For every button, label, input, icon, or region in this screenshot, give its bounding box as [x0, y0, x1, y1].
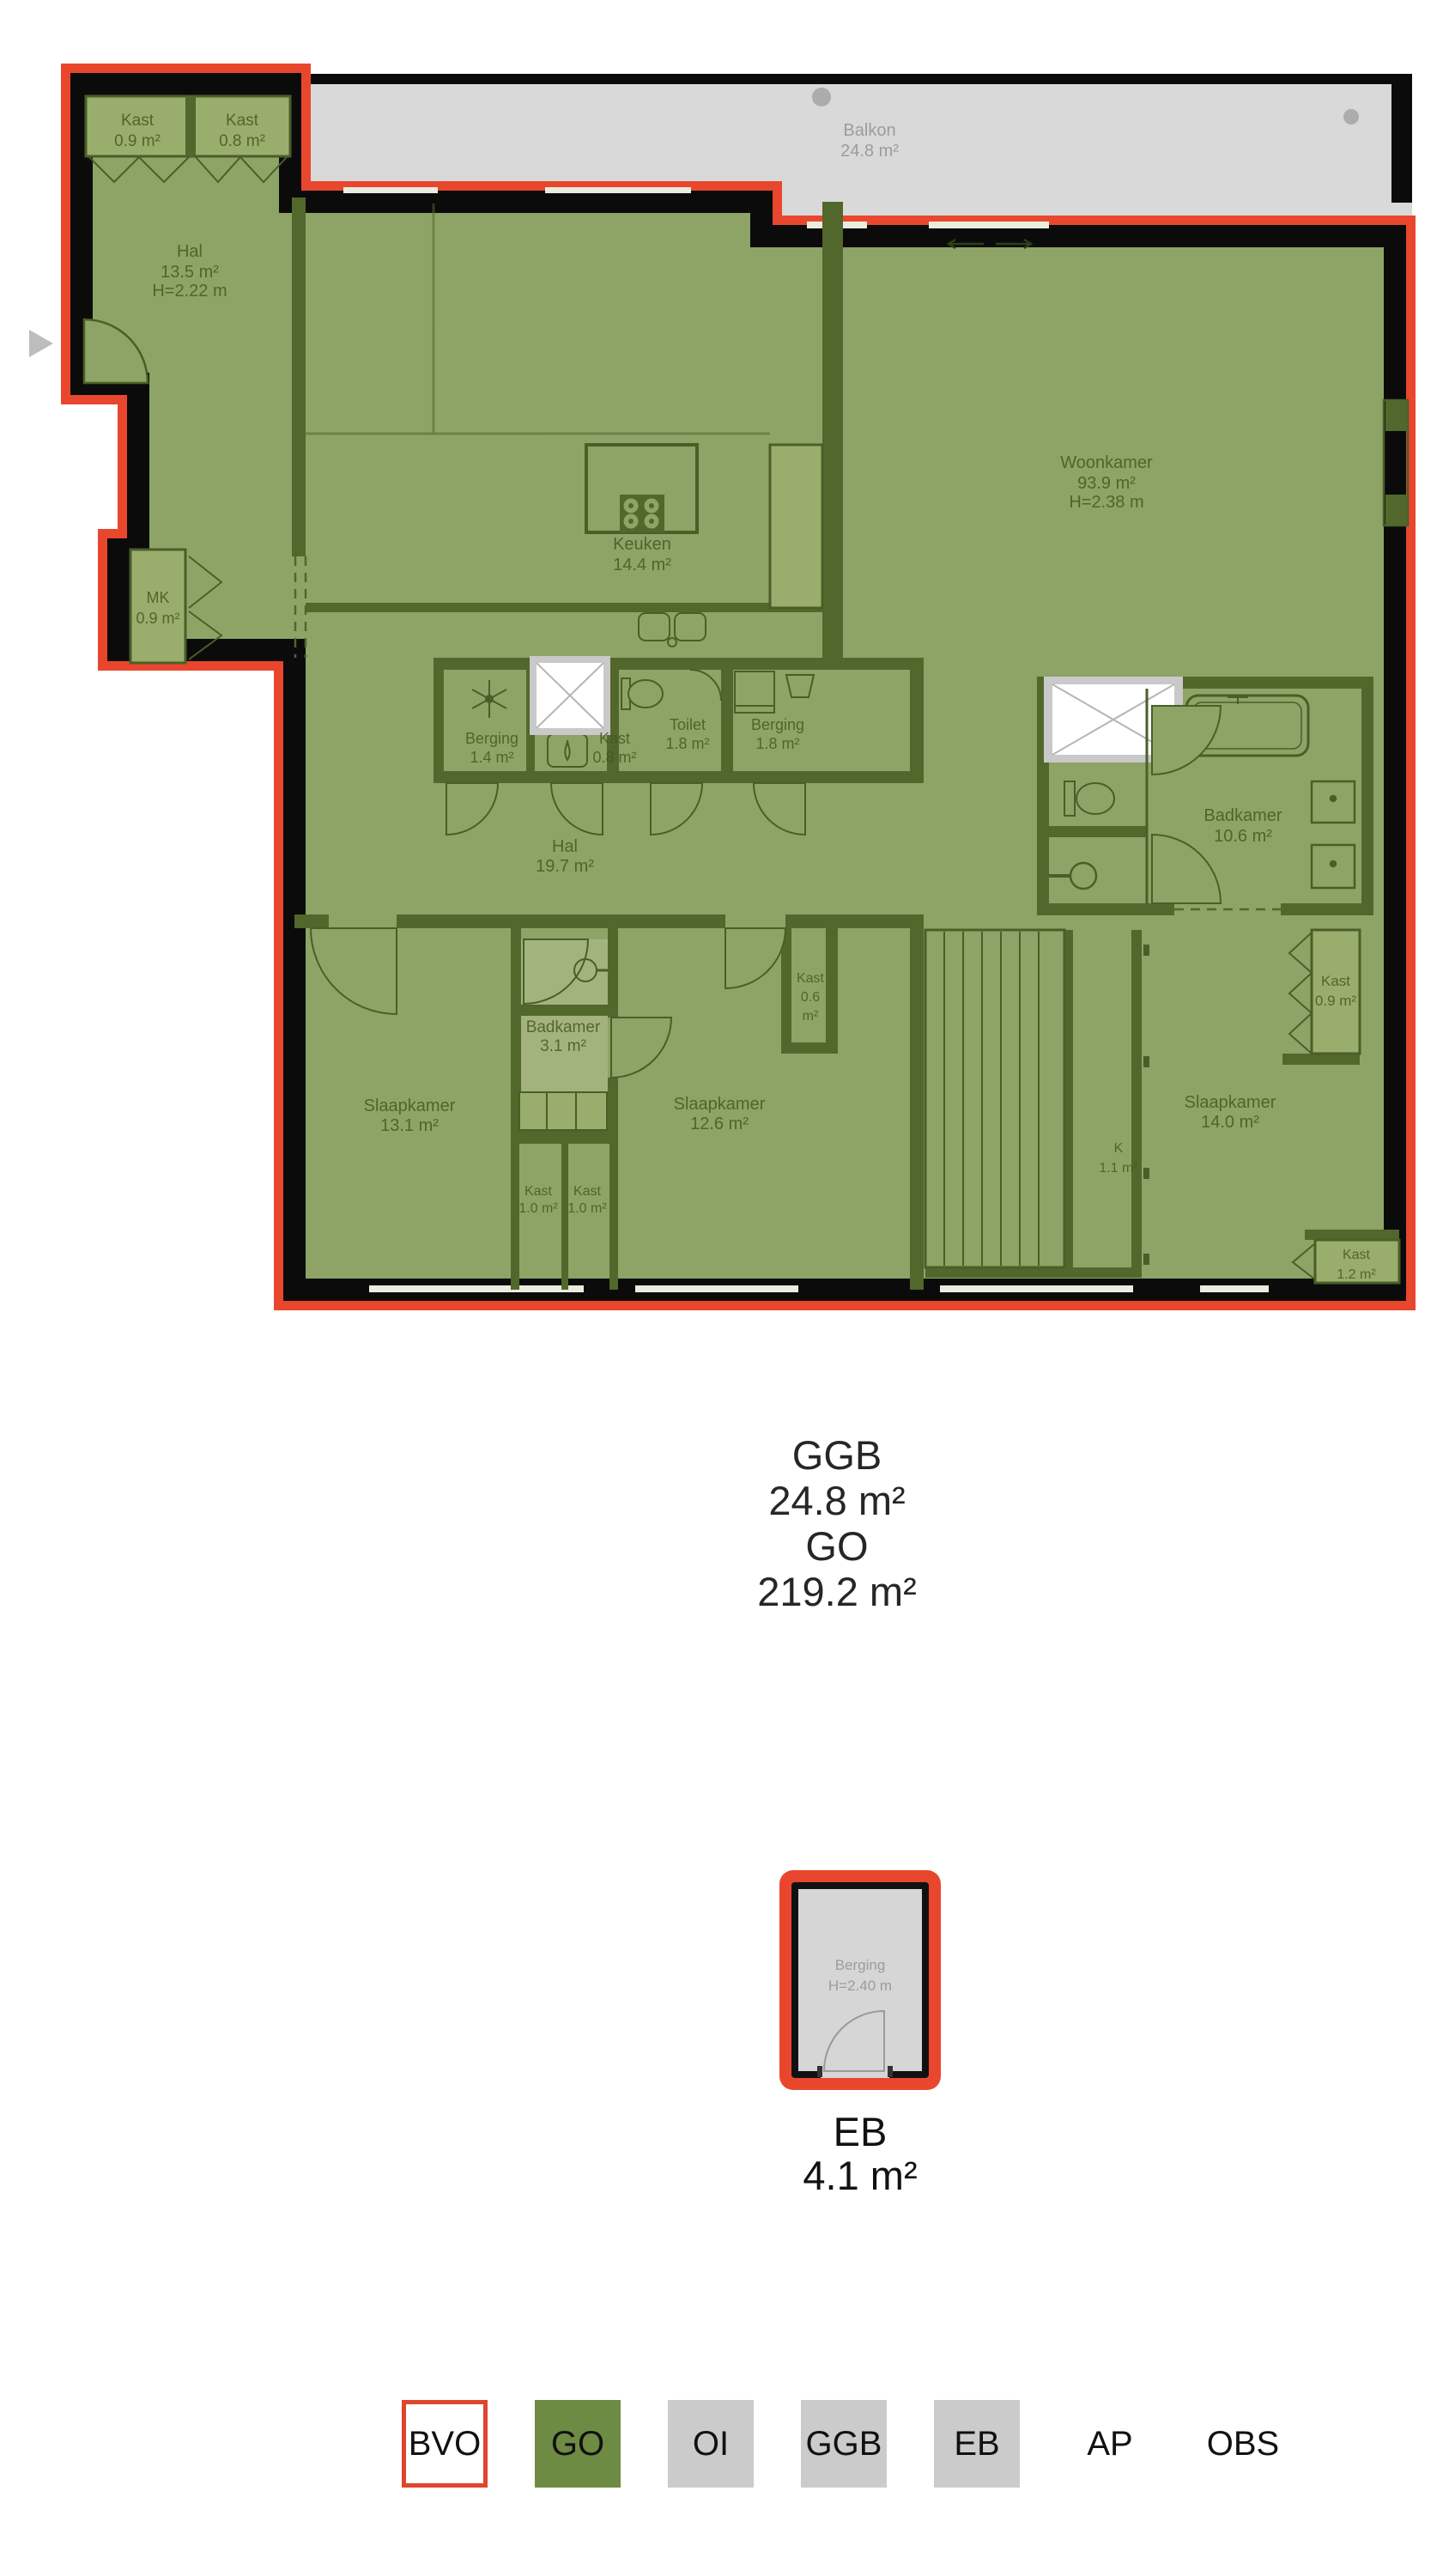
room-area: 19.7 m²: [536, 857, 594, 876]
legend-item-bvo[interactable]: BVO: [402, 2400, 488, 2488]
room-area: 1.8 m²: [665, 735, 709, 752]
room-label: Badkamer: [1203, 806, 1282, 825]
room-label: Kast: [524, 1184, 553, 1199]
toilet-icon: [1064, 781, 1114, 816]
shower-tray: [519, 1092, 607, 1130]
eb-room-height: H=2.40 m: [828, 1978, 892, 1994]
room-label: Kast: [797, 971, 825, 986]
room-area: 13.1 m²: [380, 1116, 439, 1135]
kitchen-island: [586, 445, 697, 532]
room-area: 0.9 m²: [114, 132, 161, 150]
room-area: 0.9 m²: [1315, 993, 1357, 1009]
legend-item-ggb[interactable]: GGB: [801, 2400, 887, 2488]
legend-label: OBS: [1207, 2425, 1279, 2464]
room-area: 14.0 m²: [1201, 1113, 1259, 1132]
legend-item-obs[interactable]: OBS: [1200, 2400, 1286, 2488]
room-label: Kast: [1343, 1248, 1371, 1262]
balcony-area-label: 24.8 m²: [840, 142, 899, 161]
room-area: 0.6: [801, 990, 820, 1005]
room-label: Badkamer: [526, 1018, 601, 1036]
room-label: Slaapkamer: [364, 1097, 456, 1115]
eb-room-svg: Berging H=2.40 m: [774, 1862, 946, 2099]
room-label: Toilet: [670, 716, 706, 733]
balcony-column-dot: [812, 88, 831, 106]
legend: BVO GO OI GGB EB AP OBS: [402, 2400, 1286, 2488]
legend-item-eb[interactable]: EB: [934, 2400, 1020, 2488]
room-label: Berging: [465, 730, 518, 747]
stove-icon: [620, 495, 664, 532]
toilet-icon: [621, 678, 663, 709]
balcony-label: Balkon: [843, 121, 895, 140]
eb-label: EB: [803, 2110, 917, 2154]
legend-item-go[interactable]: GO: [535, 2400, 621, 2488]
legend-item-oi[interactable]: OI: [668, 2400, 754, 2488]
eb-summary: EB 4.1 m²: [803, 2110, 917, 2197]
legend-item-ap[interactable]: AP: [1067, 2400, 1153, 2488]
room-height: H=2.38 m: [1069, 493, 1143, 512]
room-area: 3.1 m²: [540, 1037, 586, 1055]
room-label: MK: [147, 589, 170, 606]
room-label: Kast: [1321, 973, 1350, 989]
room-area: 10.6 m²: [1214, 827, 1272, 846]
legend-label: GGB: [806, 2425, 882, 2464]
eb-room-label: Berging: [835, 1957, 886, 1973]
summary-go-label: GO: [757, 1523, 916, 1569]
entrance-arrow-marker: [29, 330, 53, 357]
room-label: Hal: [177, 242, 203, 261]
room-area: 12.6 m²: [690, 1115, 749, 1133]
summary-ggb-label: GGB: [757, 1432, 916, 1478]
room-area: 1.4 m²: [470, 749, 513, 766]
room-label: K: [1114, 1141, 1124, 1156]
summary-ggb-value: 24.8 m²: [757, 1478, 916, 1523]
room-label: Slaapkamer: [674, 1095, 766, 1114]
room-label: Berging: [751, 716, 804, 733]
room-area: 0.8 m²: [219, 132, 265, 150]
legend-label: AP: [1087, 2425, 1132, 2464]
eb-value: 4.1 m²: [803, 2154, 917, 2197]
room-area: 1.0 m²: [518, 1201, 558, 1216]
room-area: 1.1 m²: [1099, 1161, 1138, 1176]
room-label: Slaapkamer: [1185, 1093, 1276, 1112]
room-area: 1.0 m²: [567, 1201, 607, 1216]
room-label: Kast: [121, 112, 155, 130]
room-label: Keuken: [613, 535, 671, 554]
legend-label: EB: [954, 2425, 999, 2464]
room-label: Hal: [552, 837, 578, 856]
room-area: 13.5 m²: [161, 263, 219, 282]
room-area: 1.8 m²: [755, 735, 799, 752]
elevator-shaft: [530, 656, 610, 735]
floorplan-page: Balkon 24.8 m²: [0, 0, 1449, 2576]
pantry-cabinet: [770, 445, 822, 608]
floorplan-svg: Balkon 24.8 m²: [0, 0, 1449, 1340]
room-area: 0.8 m²: [592, 749, 636, 766]
legend-label: BVO: [409, 2425, 481, 2464]
room-area: 14.4 m²: [613, 556, 671, 574]
room-area: 1.2 m²: [1337, 1267, 1376, 1282]
room-height: H=2.22 m: [152, 282, 227, 301]
room-label: Woonkamer: [1060, 453, 1153, 472]
room-area: 93.9 m²: [1077, 474, 1136, 493]
summary-go-value: 219.2 m²: [757, 1569, 916, 1614]
room-area-unit: m²: [803, 1009, 819, 1024]
balcony-column-dot: [1343, 109, 1359, 125]
legend-label: GO: [551, 2425, 604, 2464]
room-label: Kast: [226, 112, 259, 130]
room-area: 0.9 m²: [136, 610, 179, 627]
area-summary: GGB 24.8 m² GO 219.2 m²: [757, 1432, 916, 1614]
room-label: Kast: [599, 730, 630, 747]
legend-label: OI: [693, 2425, 729, 2464]
room-label: Kast: [573, 1184, 602, 1199]
